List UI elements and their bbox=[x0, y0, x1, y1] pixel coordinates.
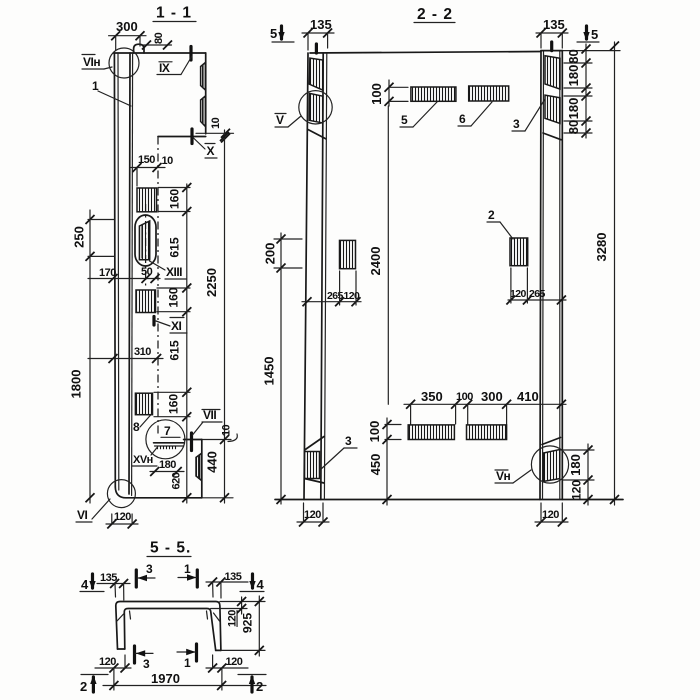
svg-text:1 - 1: 1 - 1 bbox=[156, 5, 192, 22]
svg-text:6: 6 bbox=[459, 112, 466, 126]
svg-text:10: 10 bbox=[162, 155, 174, 167]
svg-text:615: 615 bbox=[168, 340, 182, 361]
svg-text:7: 7 bbox=[164, 424, 171, 438]
svg-text:50: 50 bbox=[141, 266, 153, 278]
svg-text:1800: 1800 bbox=[69, 370, 84, 399]
svg-text:1: 1 bbox=[184, 562, 191, 576]
svg-text:180: 180 bbox=[159, 459, 176, 471]
svg-text:3: 3 bbox=[513, 117, 520, 131]
svg-text:440: 440 bbox=[205, 451, 220, 473]
svg-text:5: 5 bbox=[591, 27, 598, 42]
svg-text:410: 410 bbox=[517, 389, 539, 404]
svg-text:2: 2 bbox=[488, 208, 495, 222]
svg-text:450: 450 bbox=[368, 454, 383, 476]
svg-text:310: 310 bbox=[134, 346, 151, 358]
svg-text:1: 1 bbox=[184, 656, 191, 670]
svg-text:120: 120 bbox=[114, 511, 131, 523]
svg-text:100: 100 bbox=[369, 83, 384, 105]
svg-text:2: 2 bbox=[256, 679, 263, 694]
svg-text:200: 200 bbox=[263, 243, 278, 265]
svg-text:VIн: VIн bbox=[83, 55, 100, 69]
svg-text:120: 120 bbox=[226, 656, 243, 668]
svg-text:80: 80 bbox=[566, 49, 581, 63]
svg-text:2250: 2250 bbox=[204, 268, 219, 297]
svg-text:VI: VI bbox=[77, 508, 88, 522]
svg-text:10: 10 bbox=[221, 425, 233, 437]
svg-text:2400: 2400 bbox=[368, 247, 383, 276]
svg-text:180: 180 bbox=[566, 98, 581, 120]
svg-text:300: 300 bbox=[481, 389, 503, 404]
svg-text:265: 265 bbox=[529, 288, 545, 300]
svg-text:80: 80 bbox=[153, 32, 165, 44]
svg-text:XIII: XIII bbox=[166, 265, 182, 279]
svg-text:1450: 1450 bbox=[262, 357, 277, 386]
svg-text:135: 135 bbox=[543, 17, 565, 32]
svg-text:120: 120 bbox=[99, 656, 116, 668]
svg-text:10: 10 bbox=[210, 117, 222, 129]
svg-text:3: 3 bbox=[146, 562, 153, 576]
svg-text:160: 160 bbox=[168, 189, 182, 210]
svg-text:8: 8 bbox=[133, 420, 140, 434]
svg-text:100: 100 bbox=[367, 421, 382, 443]
svg-text:135: 135 bbox=[310, 17, 332, 32]
svg-text:120: 120 bbox=[570, 480, 584, 501]
svg-text:615: 615 bbox=[168, 237, 182, 258]
svg-text:2: 2 bbox=[80, 679, 87, 694]
svg-text:3: 3 bbox=[143, 657, 150, 671]
svg-text:X: X bbox=[207, 144, 215, 158]
svg-text:XVн: XVн bbox=[133, 454, 153, 466]
svg-text:XI: XI bbox=[171, 319, 182, 333]
svg-text:V: V bbox=[276, 113, 284, 127]
svg-text:160: 160 bbox=[167, 287, 181, 308]
svg-text:135: 135 bbox=[225, 571, 242, 583]
svg-text:350: 350 bbox=[421, 389, 443, 404]
svg-text:620: 620 bbox=[171, 472, 183, 489]
svg-text:5 - 5.: 5 - 5. bbox=[150, 540, 191, 557]
svg-text:80: 80 bbox=[566, 120, 581, 134]
svg-text:3280: 3280 bbox=[594, 233, 609, 262]
svg-text:180: 180 bbox=[568, 454, 583, 476]
svg-text:5: 5 bbox=[401, 113, 408, 127]
svg-text:3: 3 bbox=[345, 434, 352, 448]
svg-text:120: 120 bbox=[227, 610, 239, 627]
svg-text:925: 925 bbox=[241, 613, 255, 634]
svg-text:5: 5 bbox=[270, 26, 277, 41]
svg-text:180: 180 bbox=[566, 65, 581, 87]
svg-text:IX: IX bbox=[159, 61, 170, 75]
svg-text:4: 4 bbox=[81, 577, 89, 592]
svg-text:160: 160 bbox=[167, 394, 181, 415]
svg-text:250: 250 bbox=[72, 226, 87, 248]
svg-text:1970: 1970 bbox=[151, 671, 180, 686]
svg-text:Vн: Vн bbox=[496, 469, 511, 483]
svg-text:4: 4 bbox=[257, 577, 265, 592]
svg-text:2 - 2: 2 - 2 bbox=[417, 6, 453, 23]
